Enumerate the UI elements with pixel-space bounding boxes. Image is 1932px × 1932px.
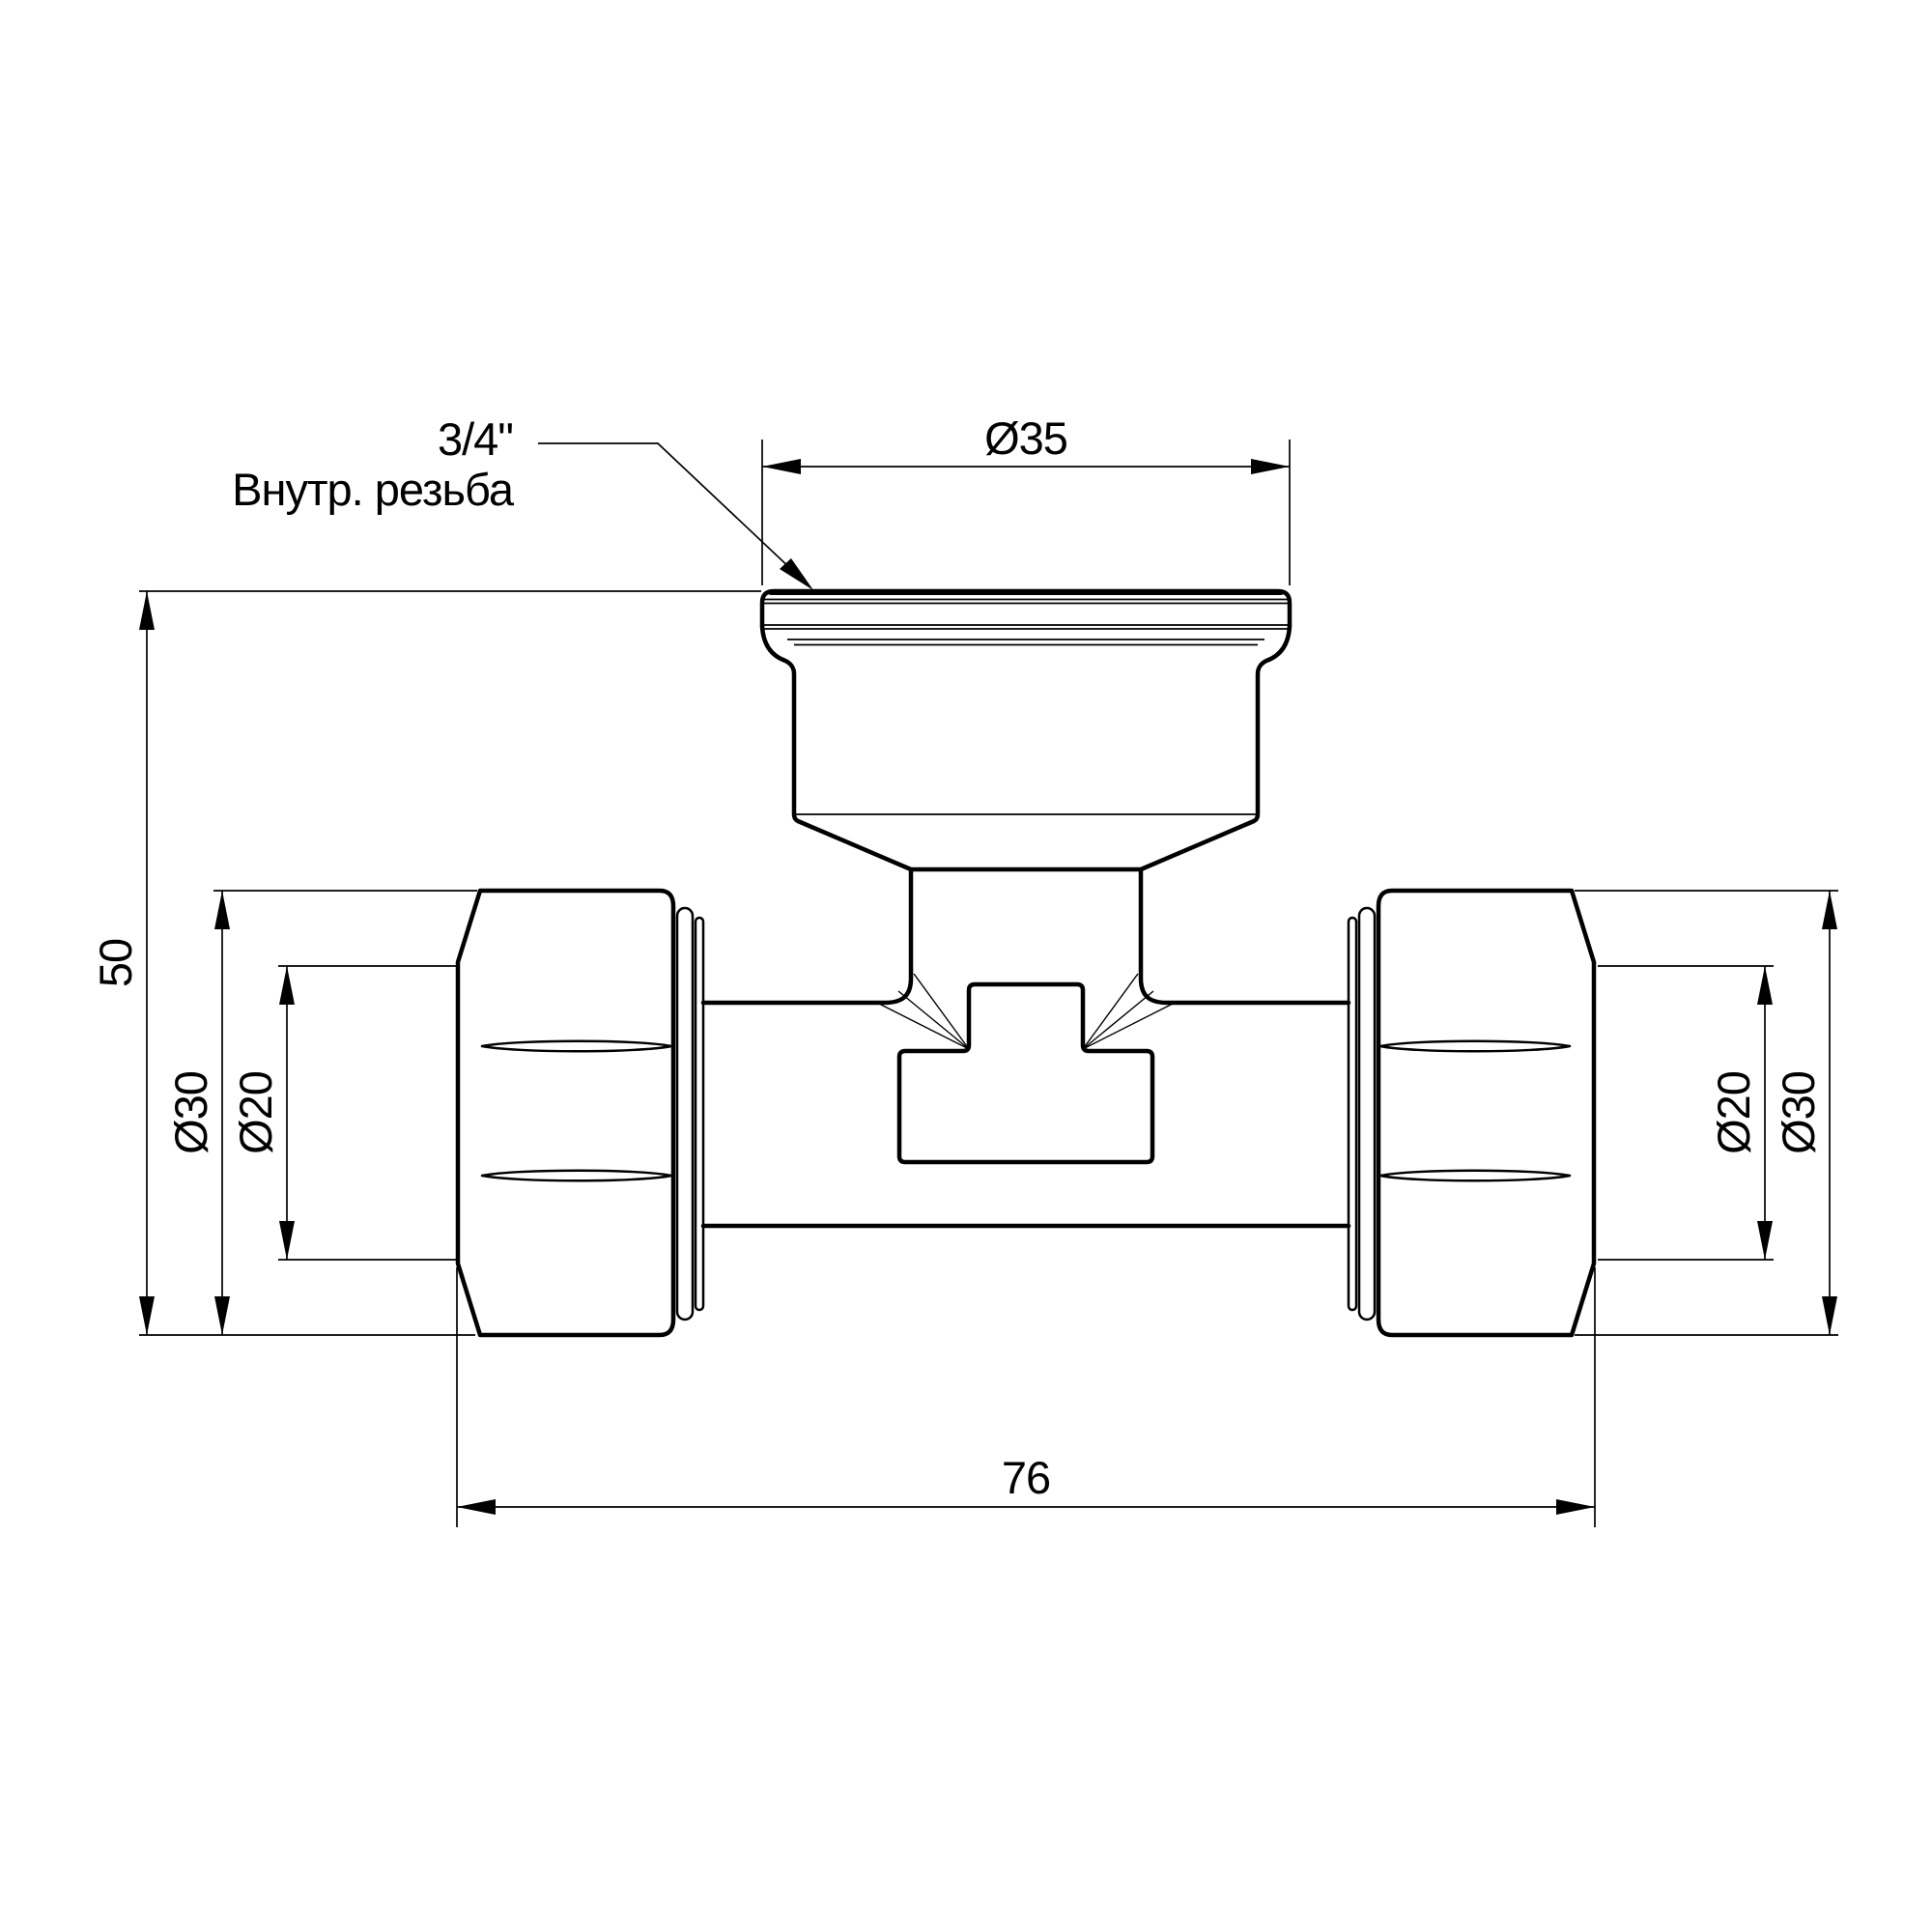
dim-label-left-nut: Ø30 — [165, 1071, 216, 1154]
left-nut-outline — [458, 891, 673, 1335]
technical-drawing: Ø35 3/4" Внутр. резьба 50 Ø30 — [0, 0, 1932, 1932]
callout-text-thread: Внутр. резьба — [232, 464, 515, 515]
dim-right-pipe-diameter: Ø20 — [1598, 966, 1774, 1260]
right-ferrule-ring — [1359, 908, 1375, 1320]
barrel — [703, 974, 1349, 1226]
left-ferrule-ring — [696, 918, 703, 1310]
port-left-profile — [762, 591, 1290, 626]
right-nut — [1349, 891, 1594, 1335]
arrowhead — [1251, 459, 1290, 474]
right-ferrule-ring — [1349, 918, 1356, 1310]
dim-left-nut-diameter: Ø30 — [165, 891, 477, 1335]
callout-text-size: 3/4" — [438, 413, 513, 465]
dim-label-height: 50 — [90, 939, 141, 987]
dim-label-right-pipe: Ø20 — [1708, 1071, 1759, 1154]
tee-boss — [899, 984, 1152, 1162]
arrowhead — [1556, 1499, 1595, 1515]
right-nut-outline — [1378, 891, 1594, 1335]
fitting-body — [458, 591, 1594, 1335]
arrowhead — [214, 1296, 230, 1335]
dim-label-overall-length: 76 — [1002, 1452, 1050, 1503]
leader-line — [538, 443, 810, 587]
left-ferrule-ring — [677, 908, 693, 1320]
drawing-canvas: Ø35 3/4" Внутр. резьба 50 Ø30 — [0, 0, 1932, 1932]
arrowhead — [279, 1221, 295, 1260]
dim-label-top-diameter: Ø35 — [984, 412, 1067, 464]
dimensions: Ø35 3/4" Внутр. резьба 50 Ø30 — [90, 412, 1838, 1527]
left-nut-facet — [482, 1171, 671, 1181]
dim-right-nut-diameter: Ø30 — [1575, 891, 1838, 1335]
left-nut-facet — [482, 1041, 671, 1052]
callout-thread: 3/4" Внутр. резьба — [232, 413, 813, 590]
arrowhead — [139, 591, 155, 630]
dim-label-left-pipe: Ø20 — [230, 1071, 281, 1154]
transition-line — [1083, 1003, 1175, 1049]
dim-left-pipe-diameter: Ø20 — [230, 966, 456, 1260]
arrowhead — [279, 966, 295, 1005]
top-port — [703, 591, 1349, 1003]
dim-overall-length: 76 — [457, 1267, 1595, 1527]
arrowhead — [457, 1499, 496, 1515]
dim-top-port-diameter: Ø35 — [762, 412, 1290, 585]
right-nut-facet — [1380, 1171, 1570, 1181]
arrowhead — [139, 1296, 155, 1335]
arrowhead — [1822, 1296, 1837, 1335]
left-nut — [458, 891, 703, 1335]
arrowhead — [214, 891, 230, 929]
dim-overall-height: 50 — [90, 591, 761, 1335]
transition-line — [877, 1003, 969, 1049]
arrowhead — [1757, 966, 1773, 1005]
arrowhead — [1822, 891, 1837, 929]
arrowhead — [762, 459, 801, 474]
right-nut-facet — [1380, 1041, 1570, 1052]
dim-label-right-nut: Ø30 — [1773, 1071, 1824, 1154]
arrowhead — [1757, 1221, 1773, 1260]
